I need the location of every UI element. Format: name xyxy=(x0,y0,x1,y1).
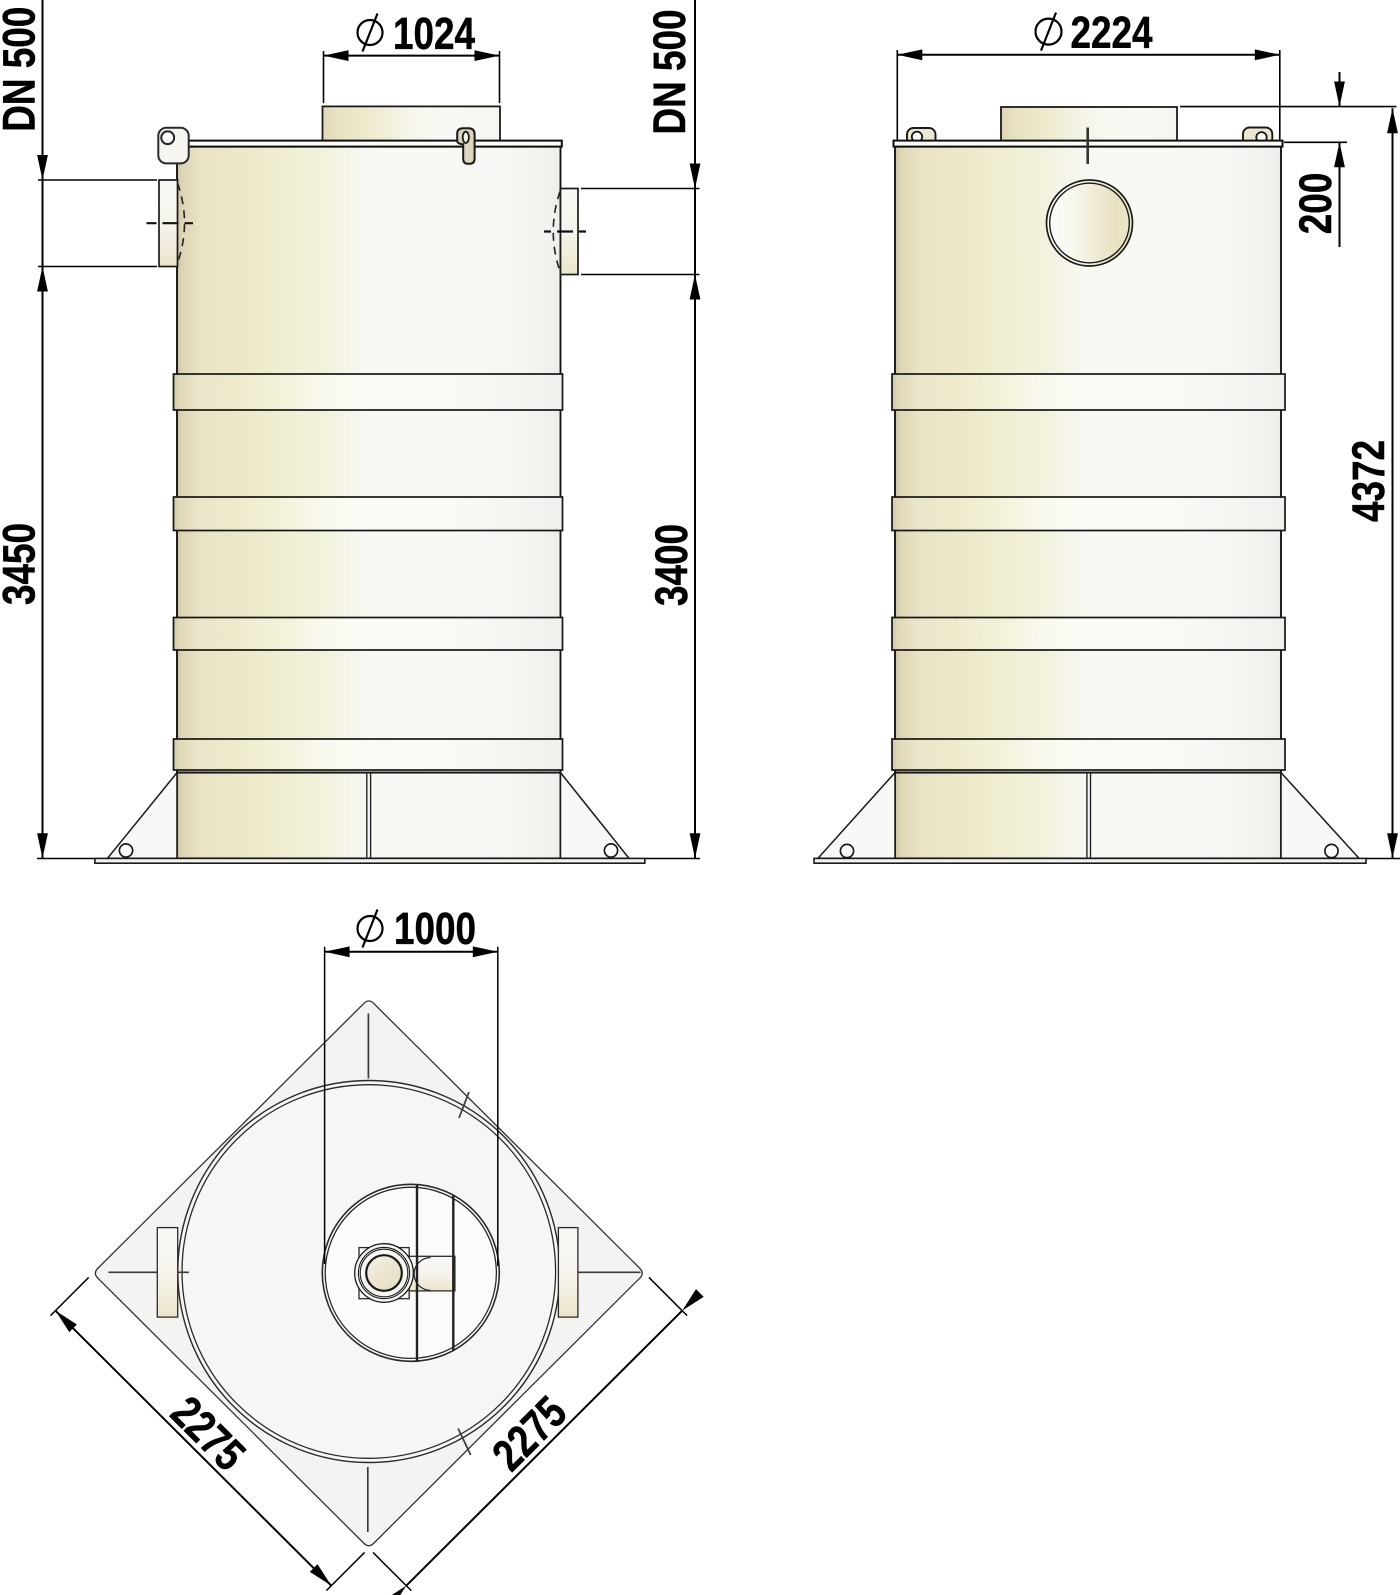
svg-text:4372: 4372 xyxy=(1343,440,1393,522)
svg-text:2224: 2224 xyxy=(1070,7,1152,57)
svg-text:200: 200 xyxy=(1290,173,1340,235)
svg-text:DN 500: DN 500 xyxy=(0,7,45,132)
svg-text:3450: 3450 xyxy=(0,523,44,605)
svg-text:1000: 1000 xyxy=(394,903,476,953)
svg-text:1024: 1024 xyxy=(393,8,475,58)
svg-text:DN 500: DN 500 xyxy=(644,9,694,134)
svg-text:3400: 3400 xyxy=(647,524,697,606)
